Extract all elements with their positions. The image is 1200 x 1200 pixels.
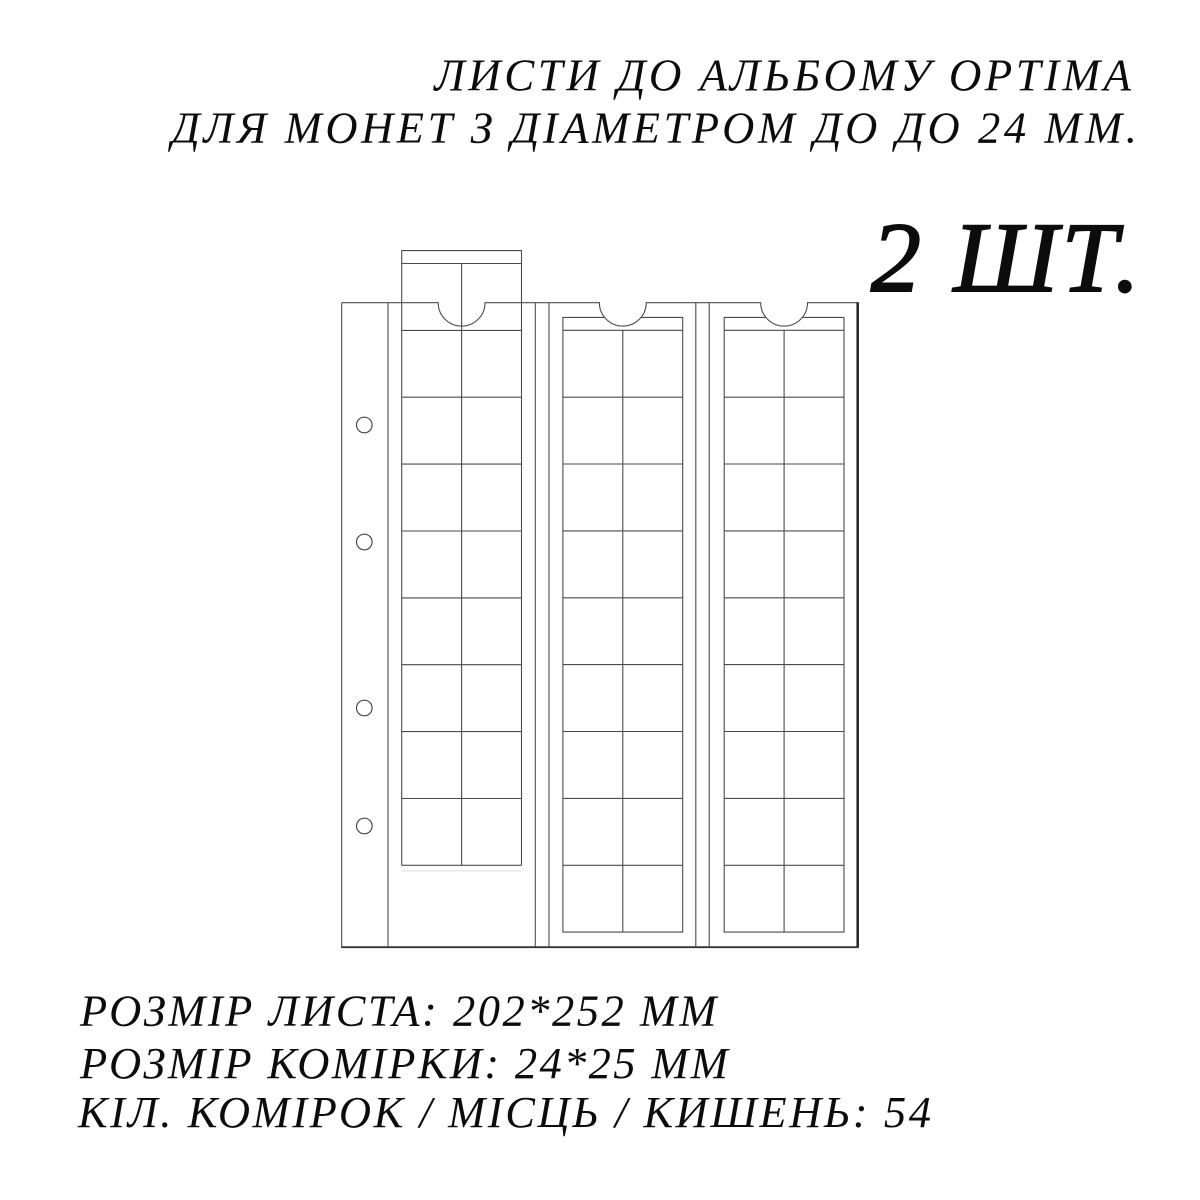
svg-text:КІЛ. КОМІРОК / МІСЦЬ / КИШЕНЬ:: КІЛ. КОМІРОК / МІСЦЬ / КИШЕНЬ: 54: [77, 1087, 934, 1137]
svg-text:РОЗМІР ЛИСТА: 202*252 ММ: РОЗМІР ЛИСТА: 202*252 ММ: [79, 986, 719, 1036]
svg-text:РОЗМІР КОМІРКИ: 24*25 ММ: РОЗМІР КОМІРКИ: 24*25 ММ: [79, 1038, 731, 1088]
svg-text:ДЛЯ МОНЕТ З ДІАМЕТРОМ ДО ДО 24: ДЛЯ МОНЕТ З ДІАМЕТРОМ ДО ДО 24 ММ.: [167, 103, 1140, 153]
svg-text:2 ШТ.: 2 ШТ.: [871, 202, 1144, 313]
svg-text:ЛИСТИ ДО АЛЬБОМУ OPTIMA: ЛИСТИ ДО АЛЬБОМУ OPTIMA: [432, 51, 1134, 101]
